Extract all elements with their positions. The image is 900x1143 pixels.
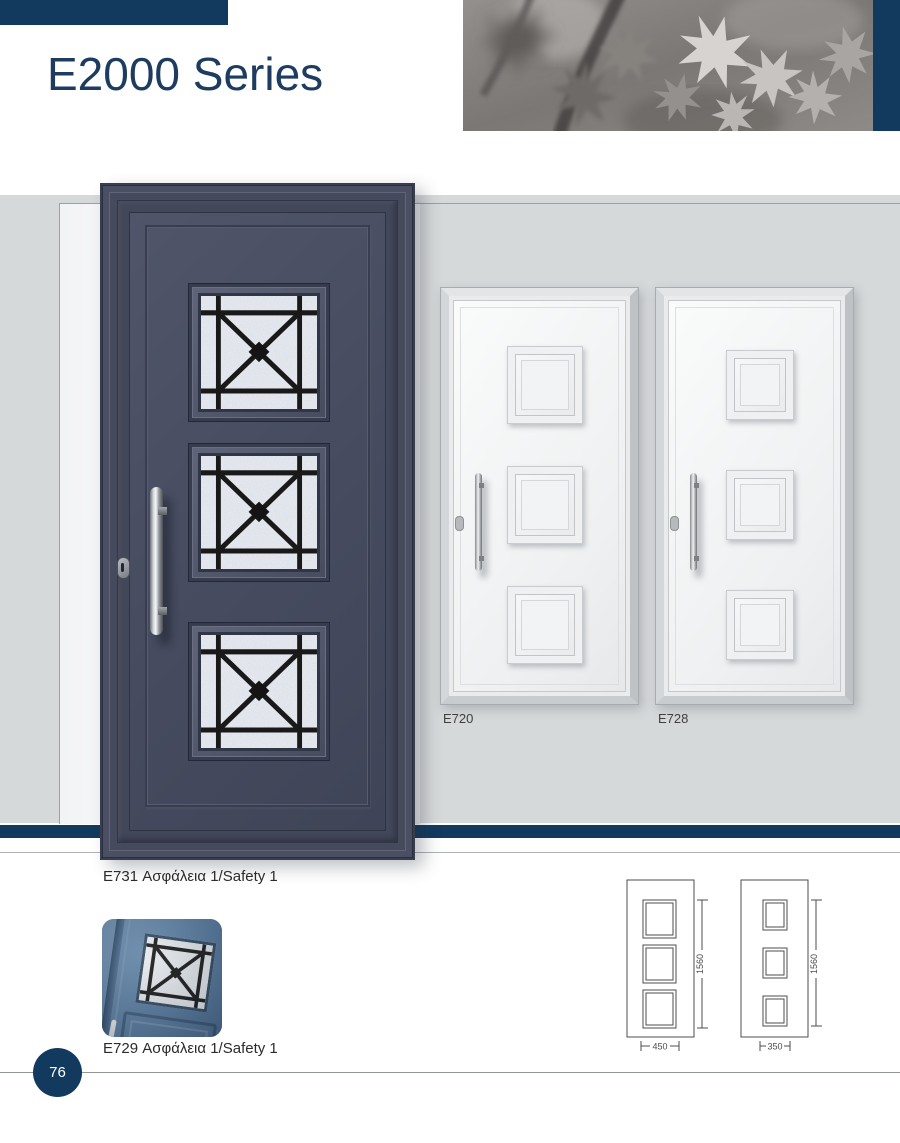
footer-rule [0,1072,900,1073]
door-e731-image [100,183,415,860]
raised-panel [726,470,794,540]
door-handle [150,487,163,635]
raised-panel [507,466,583,544]
raised-panel [507,586,583,664]
leaves-photo [463,0,873,131]
glass-panel-bottom [188,622,330,761]
keyhole [117,557,130,579]
photo-right-accent [873,0,900,131]
door-e720-label: E720 [443,711,473,726]
dimension-label-width-left: 450 [652,1042,667,1052]
thumbnail-e729 [102,919,222,1037]
raised-panel [507,346,583,424]
raised-panel [726,350,794,420]
raised-panel [726,590,794,660]
glass-panel-middle [188,443,330,582]
page-number-badge: 76 [33,1048,82,1097]
door-handle [690,473,697,571]
catalog-page: E2000 Series [0,0,900,1143]
keyhole [670,516,679,531]
page-title: E2000 Series [47,47,323,101]
door-handle [475,473,482,571]
caption-e731: E731 Ασφάλεια 1/Safety 1 [103,868,278,885]
caption-e729: E729 Ασφάλεια 1/Safety 1 [103,1040,278,1057]
door-e728-label: E728 [658,711,688,726]
header-accent-bar [0,0,228,25]
glass-panel-top [188,283,330,422]
technical-drawings: 1560 450 1560 350 [600,870,840,1060]
dimension-label-height-right: 1560 [809,954,819,974]
dimension-label-height-left: 1560 [695,954,705,974]
page-number: 76 [49,1064,66,1081]
dimension-label-width-right: 350 [767,1042,782,1052]
door-e720-image [440,287,639,705]
keyhole [455,516,464,531]
door-e728-image [655,287,854,705]
